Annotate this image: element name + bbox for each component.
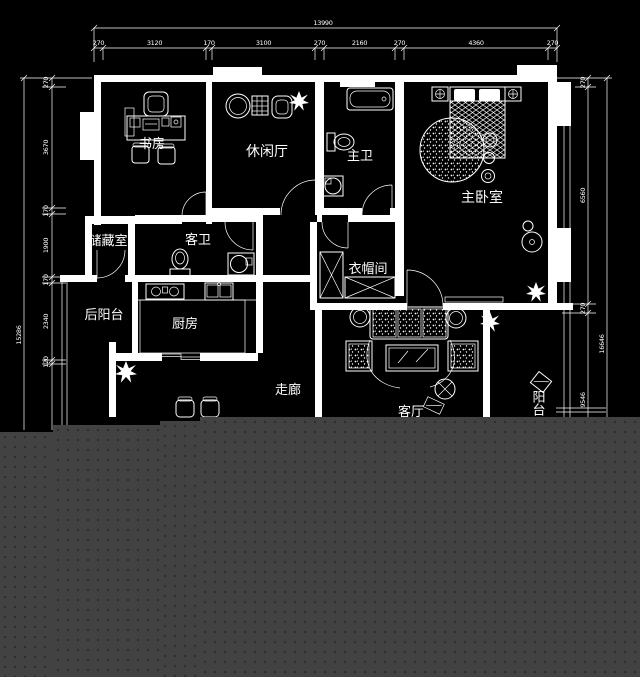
- gray-placeholder-panel: [53, 425, 160, 677]
- svg-text:270: 270: [579, 303, 587, 315]
- room-label-lounge: 休闲厅: [246, 144, 288, 160]
- lounge-furniture: [226, 94, 292, 118]
- guest-toilet: [170, 249, 190, 276]
- room-label-balcony: 阳台: [530, 390, 545, 416]
- room-label-master-bath: 主卫: [347, 149, 373, 164]
- gray-placeholder-panel: [200, 417, 640, 677]
- svg-text:120: 120: [42, 356, 50, 368]
- svg-text:270: 270: [314, 39, 326, 47]
- double-bed: [450, 87, 505, 158]
- room-label-master-bedroom: 主卧室: [461, 189, 503, 206]
- room-label-guest-bath: 客卫: [185, 232, 211, 248]
- room-label-back-balcony: 后阳台: [84, 308, 123, 323]
- gray-placeholder-panel: [160, 421, 200, 677]
- svg-text:170: 170: [42, 205, 50, 217]
- guest-washbasin: [228, 253, 254, 275]
- nightstand-right: [505, 87, 521, 101]
- dining-chairs: [176, 397, 219, 417]
- svg-text:3120: 3120: [147, 39, 163, 47]
- svg-text:3670: 3670: [42, 140, 50, 156]
- room-label-storage: 储藏室: [88, 233, 127, 249]
- svg-text:1900: 1900: [42, 238, 50, 254]
- svg-text:270: 270: [394, 39, 406, 47]
- nightstand-left: [432, 87, 448, 101]
- study-desk-set: [125, 92, 185, 164]
- svg-text:3100: 3100: [256, 39, 272, 47]
- svg-text:4360: 4360: [468, 39, 484, 47]
- svg-text:2160: 2160: [352, 39, 368, 47]
- kitchen-sink: [205, 283, 233, 301]
- walls: [60, 65, 606, 435]
- stove: [146, 284, 184, 299]
- svg-text:270: 270: [547, 39, 559, 47]
- bathtub: [347, 88, 393, 110]
- door-arcs: [97, 180, 443, 306]
- master-washbasin: [323, 176, 343, 196]
- svg-text:270: 270: [579, 77, 587, 89]
- dim-left-total: 15286: [15, 325, 23, 344]
- room-label-study: 书房: [139, 136, 165, 152]
- room-label-cloakroom: 衣帽间: [348, 261, 387, 277]
- svg-text:170: 170: [203, 39, 215, 47]
- svg-text:9546: 9546: [579, 392, 587, 408]
- dim-right-total: 16646: [598, 334, 606, 353]
- room-label-corridor: 走廊: [275, 382, 301, 398]
- dim-top-total: 13990: [313, 19, 332, 27]
- sofa-set: [346, 307, 478, 414]
- room-label-kitchen: 厨房: [172, 316, 198, 332]
- svg-text:270: 270: [93, 39, 105, 47]
- svg-text:270: 270: [42, 77, 50, 89]
- gray-placeholder-panel: [0, 432, 53, 677]
- cad-floorplan-viewport: 13990 270 3120 170 3100 270 2160 270 436…: [0, 0, 640, 677]
- svg-text:6560: 6560: [579, 188, 587, 204]
- svg-text:2340: 2340: [42, 314, 50, 330]
- svg-text:170: 170: [42, 274, 50, 286]
